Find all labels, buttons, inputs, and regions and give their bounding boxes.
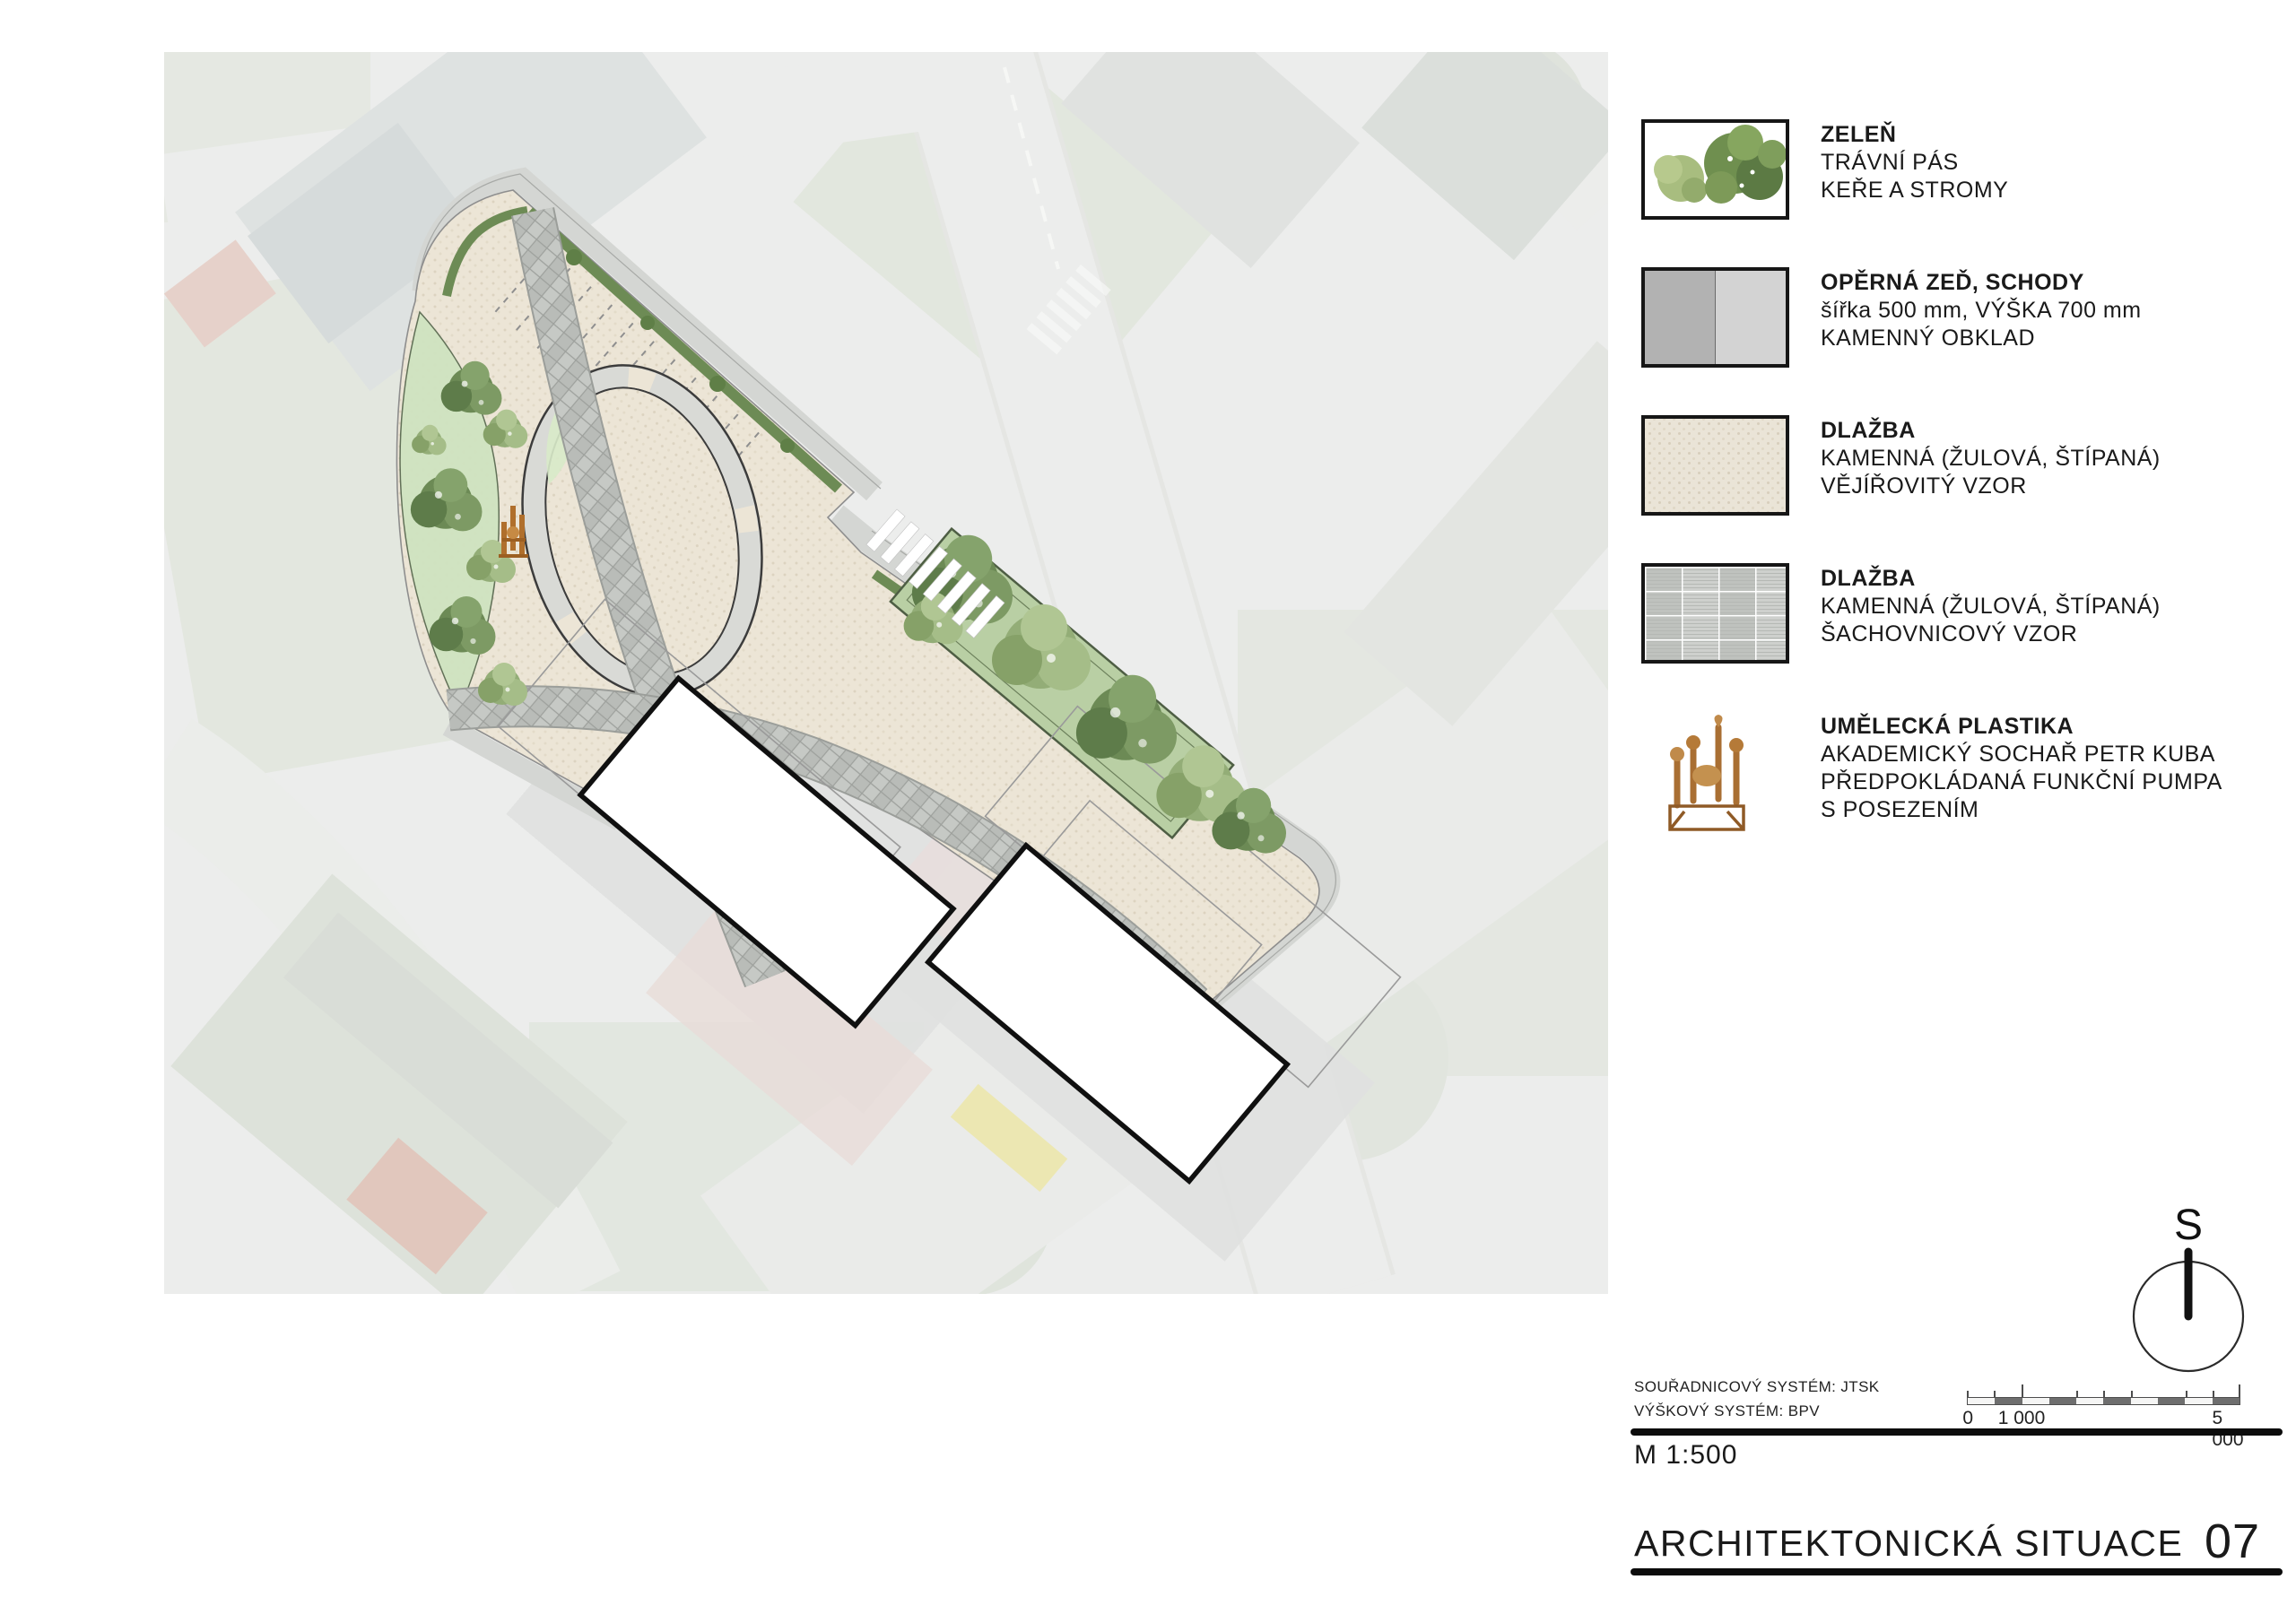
north-arrow: S [2112, 1184, 2292, 1390]
legend-line: VĚJÍŘOVITÝ VZOR [1821, 473, 2161, 500]
legend-title: UMĚLECKÁ PLASTIKA [1821, 713, 2222, 741]
legend-title: OPĚRNÁ ZEĎ, SCHODY [1821, 269, 2142, 297]
drawing-sheet: ♿ ♿ [0, 0, 2296, 1623]
legend-line: AKADEMICKÝ SOCHAŘ PETR KUBA [1821, 741, 2222, 768]
scale-bar-segments [1967, 1397, 2240, 1405]
scale-label-0: 0 [1962, 1408, 1973, 1429]
legend-line: KEŘE A STROMY [1821, 177, 2008, 204]
retaining-wall-swatch [1641, 267, 1789, 368]
scale-bar: 0 1 000 5 000 [1967, 1384, 2240, 1428]
coordinate-system-note: SOUŘADNICOVÝ SYSTÉM: JTSK [1634, 1378, 1880, 1396]
title-underline-rule [1631, 1568, 2283, 1575]
divider-rule [1631, 1428, 2283, 1436]
sheet-number: 07 [2205, 1514, 2260, 1569]
sheet-title: ARCHITEKTONICKÁ SITUACE [1634, 1523, 2183, 1565]
legend-line: S POSEZENÍM [1821, 796, 2222, 824]
legend-line: KAMENNÁ (ŽULOVÁ, ŠTÍPANÁ) [1821, 593, 2161, 621]
legend-line: PŘEDPOKLÁDANÁ FUNKČNÍ PUMPA [1821, 768, 2222, 796]
legend-line: KAMENNÁ (ŽULOVÁ, ŠTÍPANÁ) [1821, 445, 2161, 473]
checker-paving-swatch [1641, 563, 1789, 664]
legend-title: DLAŽBA [1821, 417, 2161, 445]
sculpture-graphic [1657, 711, 1756, 837]
north-label: S [2174, 1202, 2203, 1249]
greenery-swatch [1641, 119, 1789, 220]
legend-title: DLAŽBA [1821, 565, 2161, 593]
legend-line: KAMENNÝ OBKLAD [1821, 325, 2142, 352]
height-system-note: VÝŠKOVÝ SYSTÉM: BPV [1634, 1402, 1820, 1420]
legend-line: šířka 500 mm, VÝŠKA 700 mm [1821, 297, 2142, 325]
fan-paving-swatch [1641, 415, 1789, 516]
site-plan-map: ♿ ♿ [164, 52, 1608, 1294]
scale-note: M 1:500 [1634, 1440, 1737, 1471]
legend-title: ZELEŇ [1821, 121, 2008, 149]
legend-line: TRÁVNÍ PÁS [1821, 149, 2008, 177]
sculpture-image [1657, 711, 1756, 841]
tree-swatch-graphic [1645, 123, 1786, 216]
legend-line: ŠACHOVNICOVÝ VZOR [1821, 621, 2161, 648]
scale-label-1000: 1 000 [1998, 1408, 2046, 1429]
